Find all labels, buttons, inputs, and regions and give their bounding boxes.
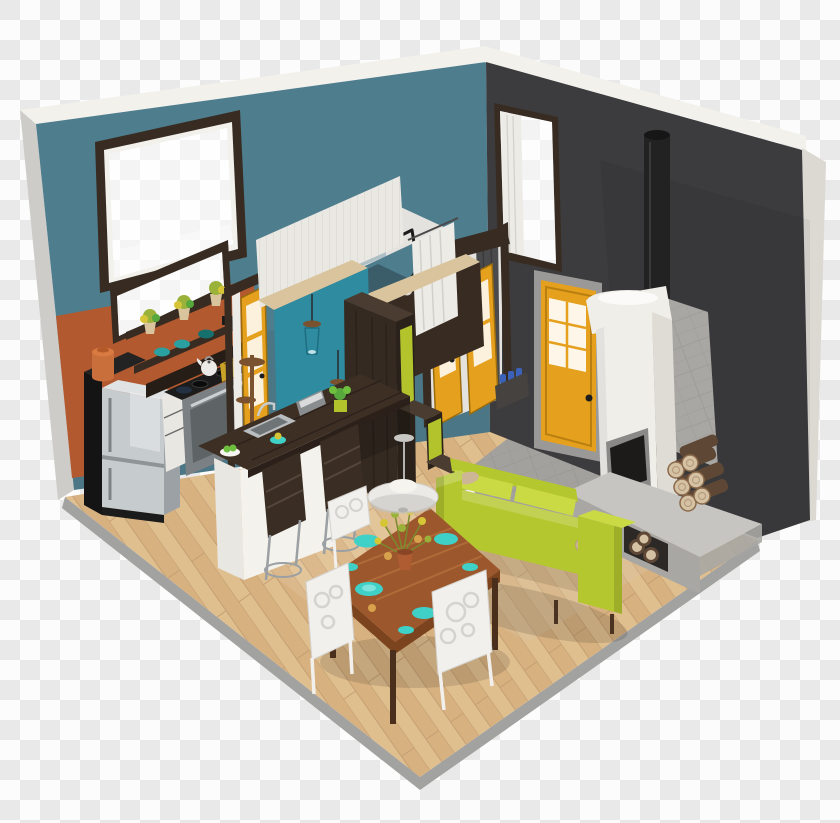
- door-knob: [586, 395, 593, 402]
- tiny-house-render: 3D isometric cutaway render of a tiny ho…: [0, 0, 840, 823]
- render-canvas: 3D isometric cutaway render of a tiny ho…: [0, 0, 840, 823]
- canister: [92, 348, 114, 382]
- pan: [176, 387, 192, 394]
- stovepipe: [644, 130, 670, 306]
